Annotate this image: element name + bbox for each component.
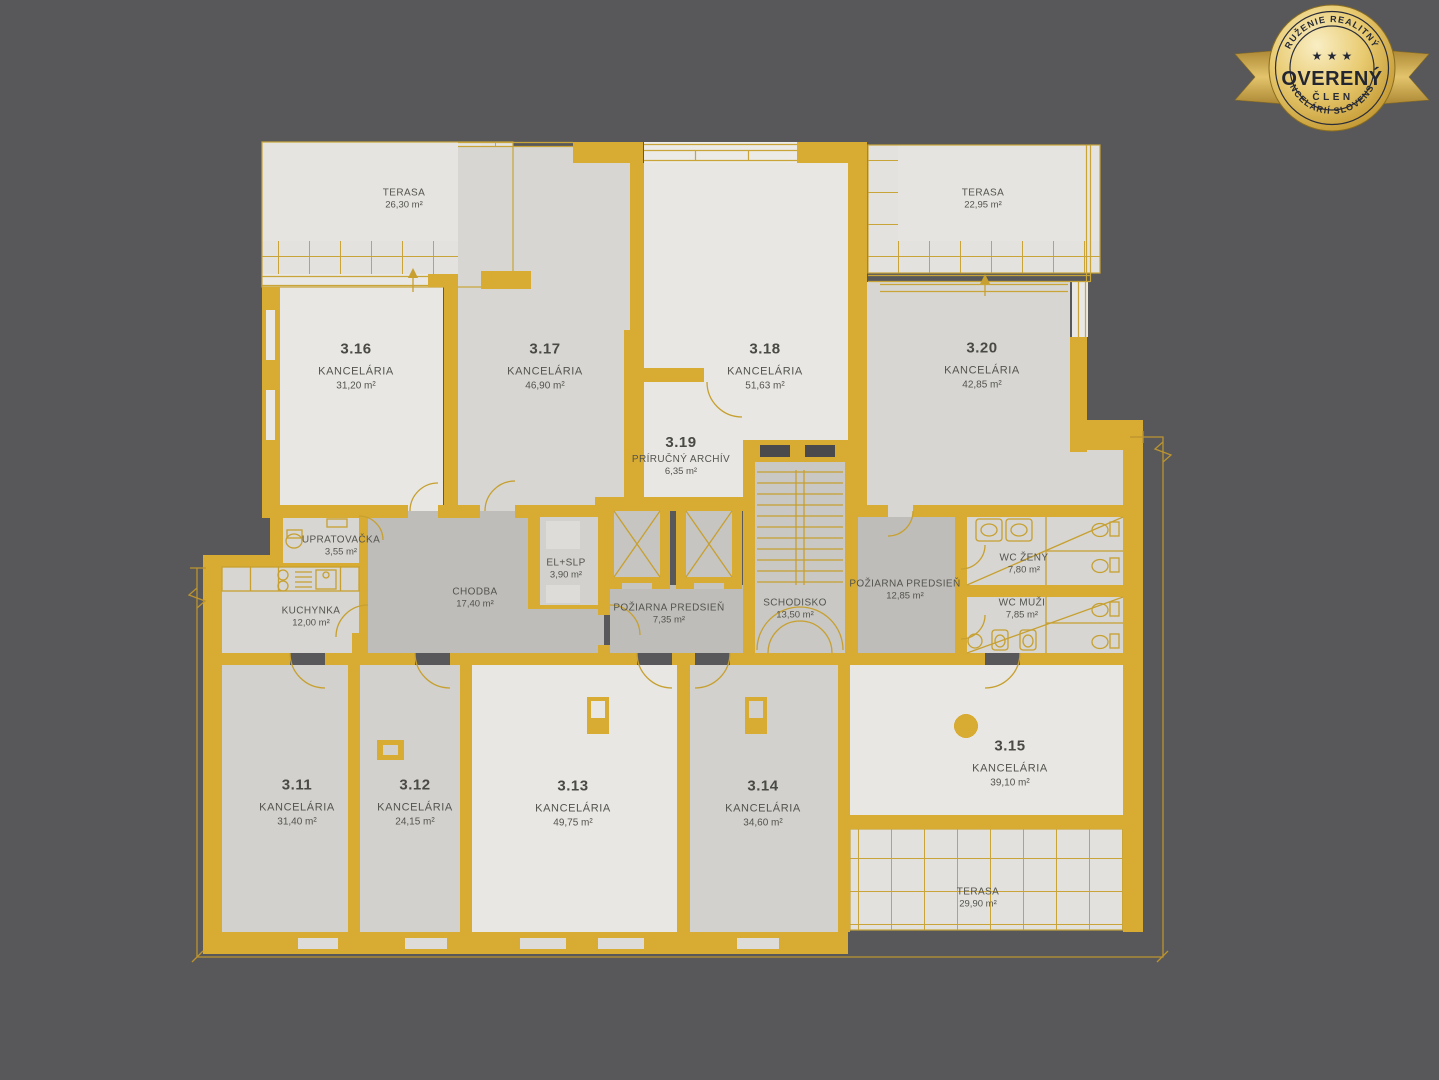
- room-number: 3.11: [259, 776, 335, 793]
- room-number: 3.20: [944, 339, 1020, 356]
- room-area: 29,90 m²: [957, 899, 999, 910]
- verified-member-badge: ZDRUŽENIE REALITNÝCH KANCELÁRIÍ SLOVENSK…: [1225, 0, 1439, 140]
- room-label-wc-muzi: WC MUŽI 7,85 m²: [999, 597, 1046, 620]
- room-type: KANCELÁRIA: [259, 802, 335, 815]
- room-label-3-18: 3.18 KANCELÁRIA 51,63 m²: [727, 340, 803, 391]
- room-label-terasa-bottom: TERASA 29,90 m²: [957, 886, 999, 909]
- room-label-terasa-top-right: TERASA 22,95 m²: [962, 187, 1004, 210]
- floor-plan-page: TERASA 26,30 m² 3.16 KANCELÁRIA 31,20 m²…: [0, 0, 1439, 1080]
- room-label-3-12: 3.12 KANCELÁRIA 24,15 m²: [377, 776, 453, 827]
- room-area: 13,50 m²: [763, 610, 827, 621]
- room-area: 49,75 m²: [535, 817, 611, 829]
- room-area: 17,40 m²: [452, 599, 497, 610]
- room-type: KANCELÁRIA: [727, 366, 803, 379]
- room-area: 46,90 m²: [507, 380, 583, 392]
- room-number: 3.19: [632, 434, 730, 451]
- room-number: 3.18: [727, 340, 803, 357]
- room-type: PRÍRUČNÝ ARCHÍV: [632, 454, 730, 466]
- room-area: 31,20 m²: [318, 380, 394, 392]
- room-number: 3.13: [535, 777, 611, 794]
- room-area: 22,95 m²: [962, 200, 1004, 211]
- room-type: POŽIARNA PREDSIEŇ: [613, 602, 724, 614]
- room-label-3-13: 3.13 KANCELÁRIA 49,75 m²: [535, 777, 611, 828]
- room-area: 7,80 m²: [1000, 565, 1049, 576]
- room-label-3-20: 3.20 KANCELÁRIA 42,85 m²: [944, 339, 1020, 390]
- room-area: 12,85 m²: [849, 591, 960, 602]
- room-label-wc-zeny: WC ŽENY 7,80 m²: [1000, 552, 1049, 575]
- room-number: 3.16: [318, 340, 394, 357]
- room-area: 6,35 m²: [632, 467, 730, 478]
- room-area: 3,90 m²: [546, 570, 585, 581]
- room-label-3-19: 3.19 PRÍRUČNÝ ARCHÍV 6,35 m²: [632, 434, 730, 478]
- room-type: WC ŽENY: [1000, 552, 1049, 564]
- room-area: 12,00 m²: [282, 618, 341, 629]
- room-label-terasa-top-left: TERASA 26,30 m²: [383, 187, 425, 210]
- room-type: KANCELÁRIA: [944, 365, 1020, 378]
- room-type: KANCELÁRIA: [507, 366, 583, 379]
- room-label-3-16: 3.16 KANCELÁRIA 31,20 m²: [318, 340, 394, 391]
- room-label-poziarna-predsien-2: POŽIARNA PREDSIEŇ 12,85 m²: [849, 578, 960, 601]
- room-type: KANCELÁRIA: [377, 802, 453, 815]
- room-area: 51,63 m²: [727, 380, 803, 392]
- room-area: 34,60 m²: [725, 817, 801, 829]
- badge-stars: ★ ★ ★: [1312, 49, 1353, 63]
- room-type: TERASA: [962, 187, 1004, 199]
- room-type: KANCELÁRIA: [972, 763, 1048, 776]
- badge-subtitle: ČLEN: [1312, 90, 1353, 103]
- room-type: KUCHYNKA: [282, 605, 341, 617]
- room-area: 42,85 m²: [944, 379, 1020, 391]
- room-type: SCHODISKO: [763, 597, 827, 609]
- room-area: 7,35 m²: [613, 615, 724, 626]
- room-label-3-14: 3.14 KANCELÁRIA 34,60 m²: [725, 777, 801, 828]
- room-area: 7,85 m²: [999, 610, 1046, 621]
- room-number: 3.15: [972, 737, 1048, 754]
- room-area: 26,30 m²: [383, 200, 425, 211]
- room-area: 3,55 m²: [302, 547, 380, 558]
- room-label-el-slp: EL+SLP 3,90 m²: [546, 557, 585, 580]
- room-label-3-15: 3.15 KANCELÁRIA 39,10 m²: [972, 737, 1048, 788]
- room-area: 39,10 m²: [972, 777, 1048, 789]
- badge-title: OVERENÝ: [1281, 66, 1382, 90]
- room-label-3-17: 3.17 KANCELÁRIA 46,90 m²: [507, 340, 583, 391]
- room-type: TERASA: [957, 886, 999, 898]
- room-number: 3.17: [507, 340, 583, 357]
- room-area: 24,15 m²: [377, 816, 453, 828]
- room-type: KANCELÁRIA: [725, 803, 801, 816]
- room-type: EL+SLP: [546, 557, 585, 569]
- room-label-upratovacka: UPRATOVAČKA 3,55 m²: [302, 534, 380, 557]
- room-number: 3.12: [377, 776, 453, 793]
- room-type: CHODBA: [452, 586, 497, 598]
- room-type: TERASA: [383, 187, 425, 199]
- room-number: 3.14: [725, 777, 801, 794]
- room-label-poziarna-predsien-1: POŽIARNA PREDSIEŇ 7,35 m²: [613, 602, 724, 625]
- floor-plan-drawing: [0, 0, 1439, 1080]
- room-label-schodisko: SCHODISKO 13,50 m²: [763, 597, 827, 620]
- room-type: KANCELÁRIA: [318, 366, 394, 379]
- room-label-chodba: CHODBA 17,40 m²: [452, 586, 497, 609]
- room-type: KANCELÁRIA: [535, 803, 611, 816]
- room-type: UPRATOVAČKA: [302, 534, 380, 546]
- room-type: WC MUŽI: [999, 597, 1046, 609]
- room-type: POŽIARNA PREDSIEŇ: [849, 578, 960, 590]
- room-area: 31,40 m²: [259, 816, 335, 828]
- room-label-kuchynka: KUCHYNKA 12,00 m²: [282, 605, 341, 628]
- room-label-3-11: 3.11 KANCELÁRIA 31,40 m²: [259, 776, 335, 827]
